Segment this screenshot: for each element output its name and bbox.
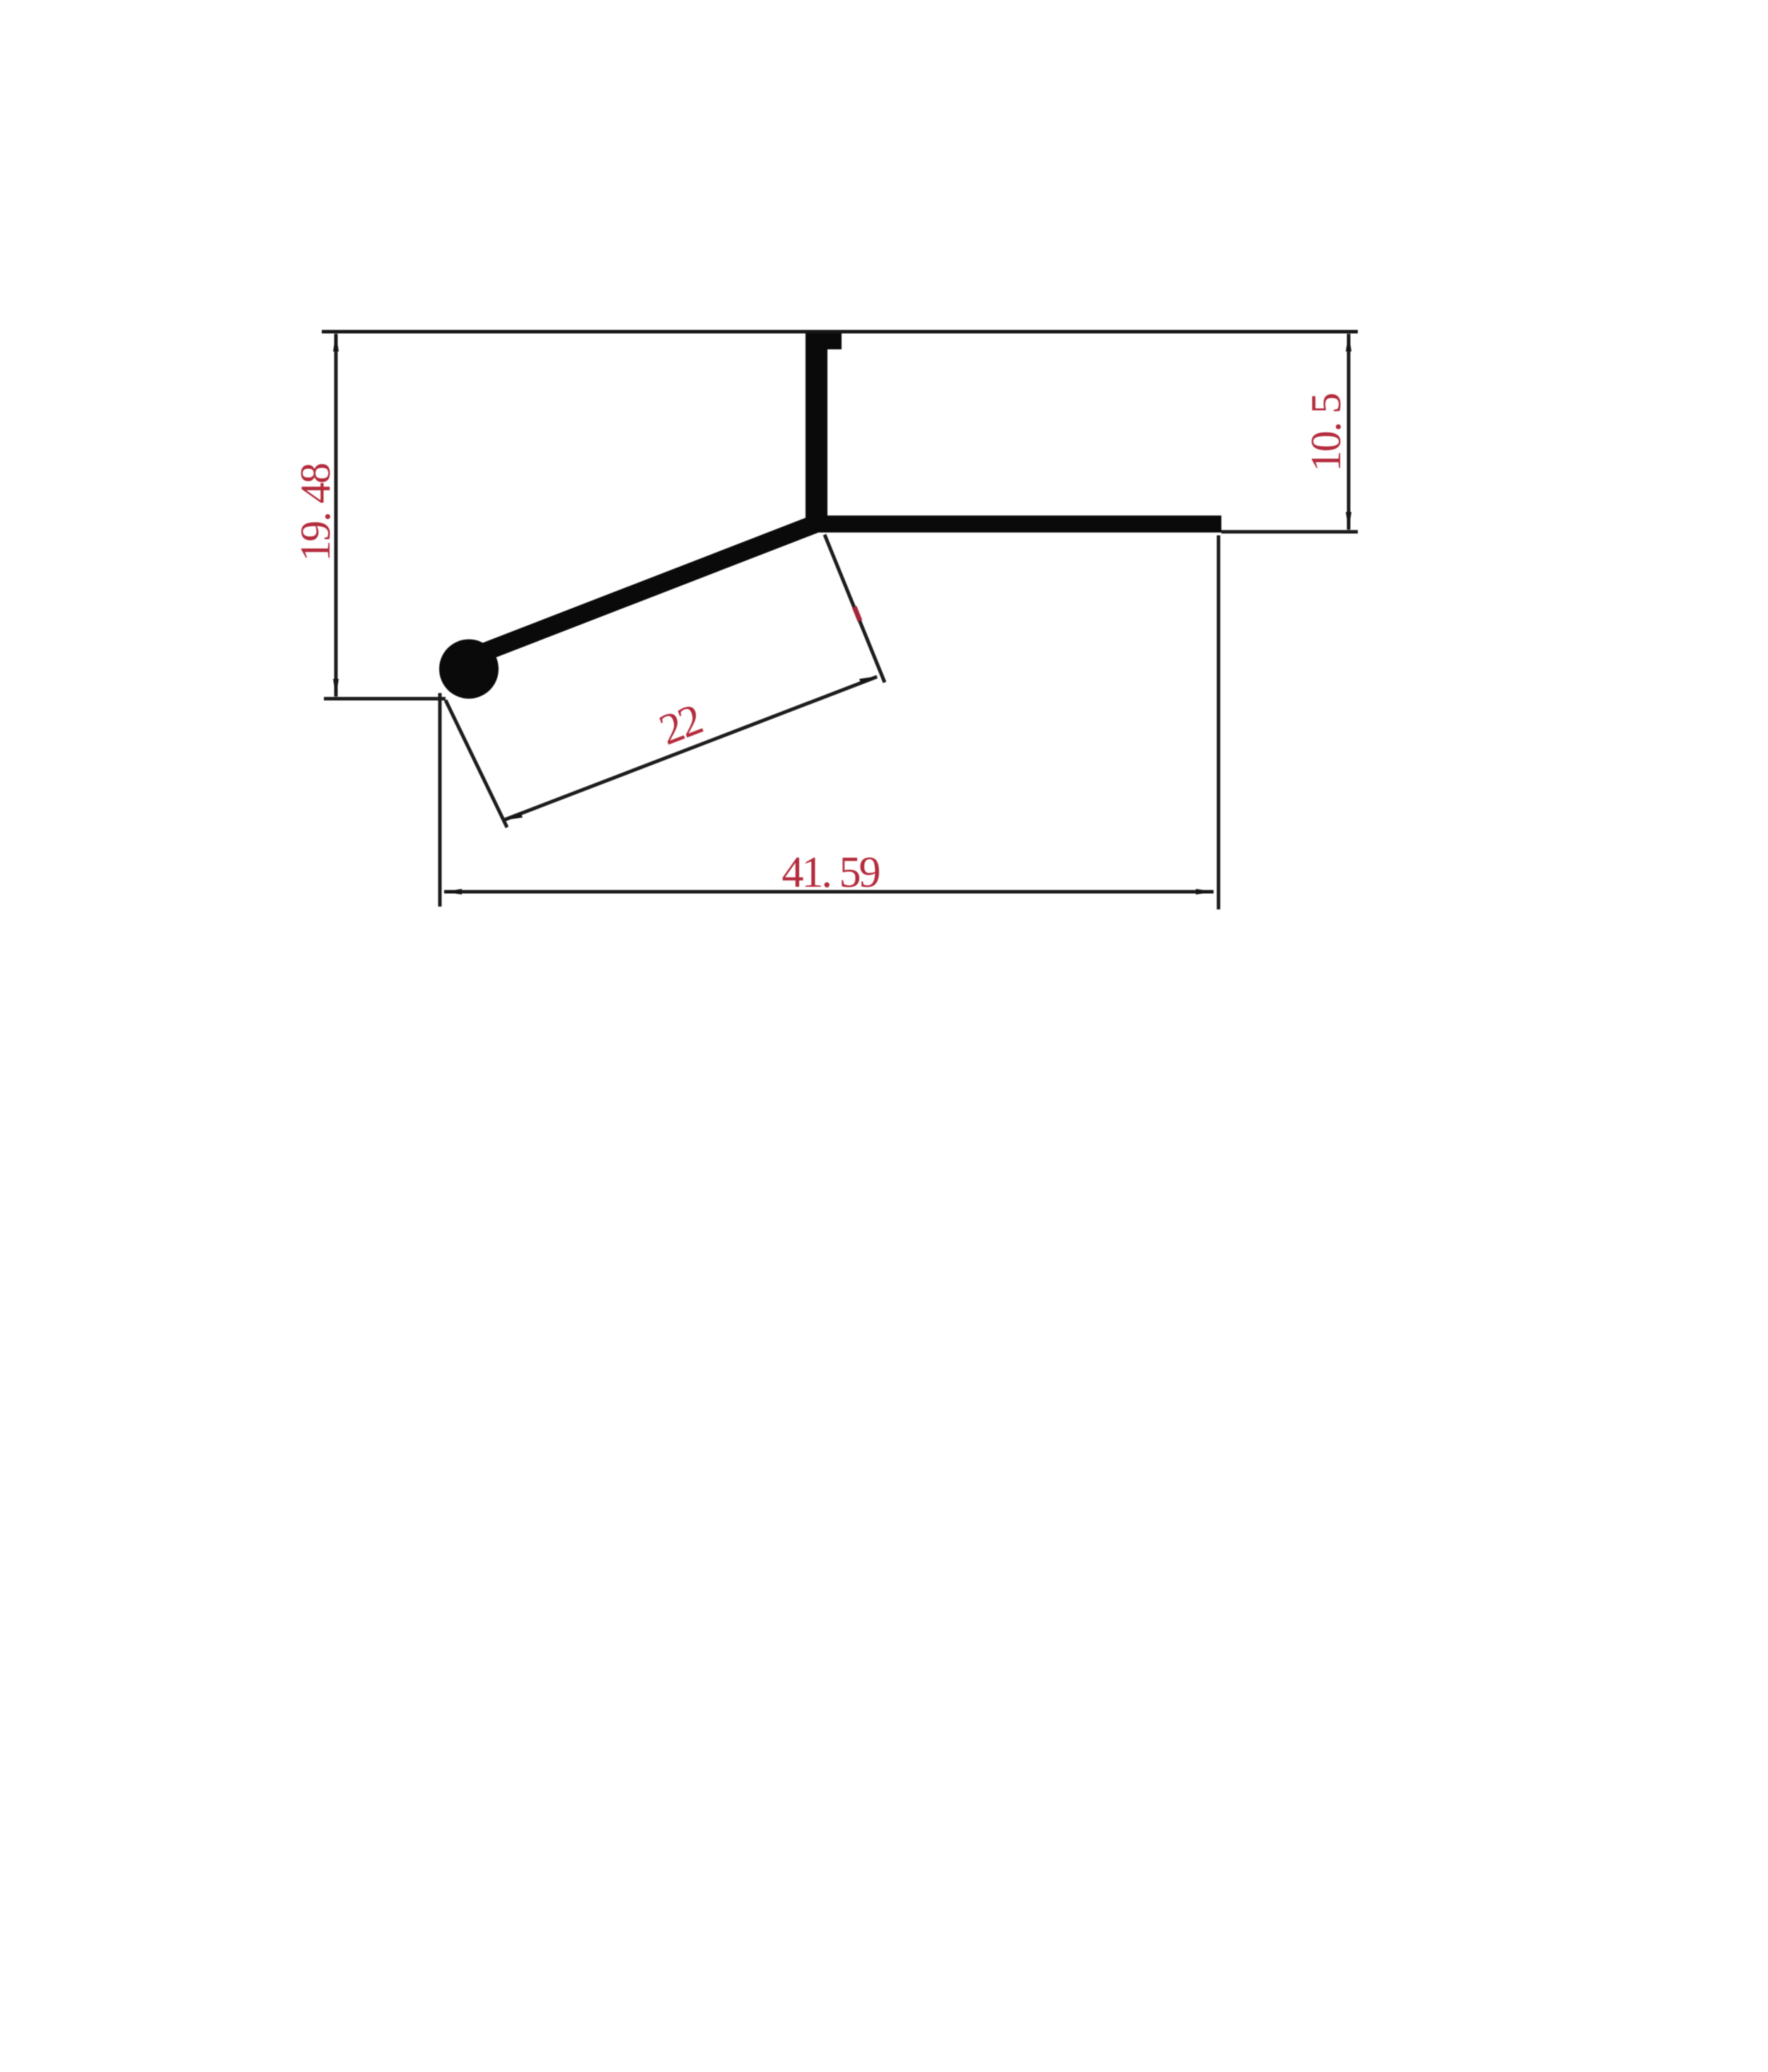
svg-text:19. 48: 19. 48 [292,464,339,561]
svg-text:41. 59: 41. 59 [782,849,880,897]
svg-text:10. 5: 10. 5 [1303,394,1349,472]
